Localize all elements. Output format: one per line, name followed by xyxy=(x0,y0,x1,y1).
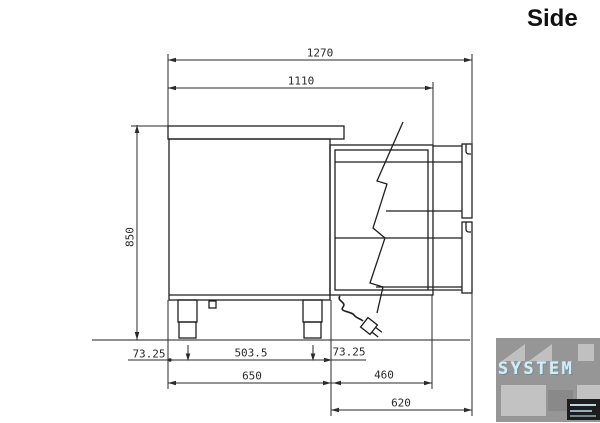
dim-front-leg-offset-label: 73.25 xyxy=(132,349,165,360)
power-cord-and-plug xyxy=(339,296,384,339)
rear-leg xyxy=(303,300,322,338)
dim-overall-depth-label: 1270 xyxy=(307,48,334,59)
watermark-block xyxy=(501,385,546,416)
lower-drawer-handle-hook xyxy=(466,222,471,232)
countertop-outline xyxy=(168,126,344,139)
upper-drawer-panel xyxy=(462,144,472,218)
watermark-logo: SYSTEM xyxy=(496,338,600,422)
view-title: Side xyxy=(527,5,597,33)
rear-unit-housing xyxy=(330,145,462,295)
dimension-lines xyxy=(128,54,472,416)
dim-rear-unit-depth-label: 620 xyxy=(391,398,411,409)
machine-outline xyxy=(92,122,472,340)
dim-rear-leg-offset-label: 73.25 xyxy=(332,347,365,358)
dim-leg-spacing-label: 503.5 xyxy=(234,348,267,359)
dimension-arrows xyxy=(135,58,472,413)
cabinet-body-outline xyxy=(169,139,330,300)
watermark-fineprint-block xyxy=(567,399,600,420)
dim-rear-section-depth-label: 460 xyxy=(374,370,394,381)
base-fitting xyxy=(209,301,216,308)
dim-rear-panel-depth-label: 1110 xyxy=(288,76,315,87)
upper-drawer-handle-hook xyxy=(466,144,471,154)
watermark-brand-text: SYSTEM xyxy=(498,359,600,380)
front-leg xyxy=(178,300,197,338)
drawer-panels xyxy=(462,144,472,293)
side-view-drawing-page: 1270 1110 850 73.25 503.5 73.25 650 460 … xyxy=(0,0,600,423)
dim-body-depth-label: 650 xyxy=(242,371,262,382)
dim-height-label: 850 xyxy=(125,227,136,247)
